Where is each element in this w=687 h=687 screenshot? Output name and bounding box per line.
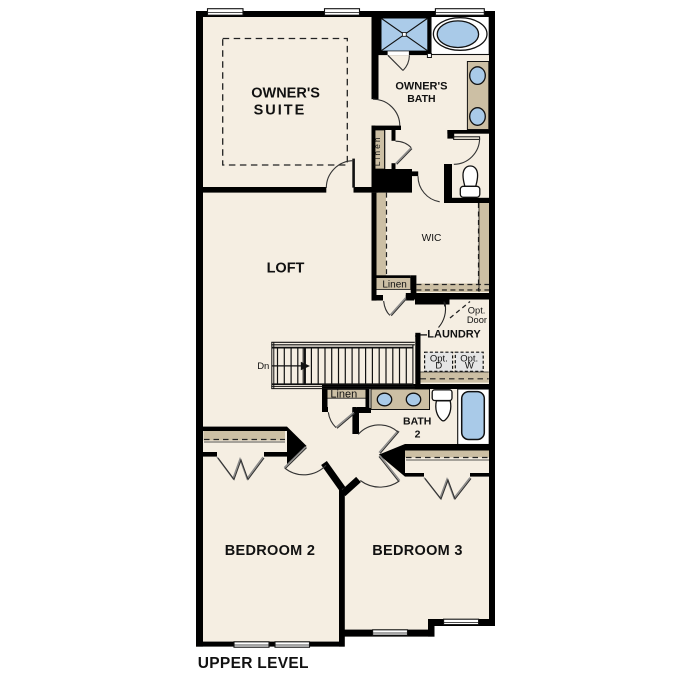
svg-text:D: D bbox=[435, 361, 442, 372]
svg-text:LAUNDRY: LAUNDRY bbox=[427, 329, 481, 341]
svg-text:OWNER'S: OWNER'S bbox=[395, 81, 447, 93]
svg-text:SUITE: SUITE bbox=[254, 103, 307, 119]
svg-text:W: W bbox=[465, 361, 474, 372]
svg-text:BATH: BATH bbox=[403, 415, 431, 427]
svg-text:BEDROOM 2: BEDROOM 2 bbox=[225, 543, 316, 559]
svg-text:Linen: Linen bbox=[382, 280, 406, 291]
svg-text:Door: Door bbox=[467, 315, 487, 325]
svg-text:BEDROOM 3: BEDROOM 3 bbox=[372, 543, 463, 559]
svg-text:UPPER LEVEL: UPPER LEVEL bbox=[198, 655, 309, 672]
svg-text:LOFT: LOFT bbox=[267, 261, 305, 277]
svg-text:Dn: Dn bbox=[257, 361, 269, 372]
svg-text:OWNER'S: OWNER'S bbox=[251, 86, 320, 102]
svg-text:Linen: Linen bbox=[372, 135, 382, 166]
svg-text:Linen: Linen bbox=[330, 389, 357, 401]
svg-text:BATH: BATH bbox=[407, 93, 435, 105]
svg-text:Opt.: Opt. bbox=[468, 305, 486, 315]
svg-text:WIC: WIC bbox=[422, 233, 442, 244]
svg-text:2: 2 bbox=[415, 428, 421, 440]
